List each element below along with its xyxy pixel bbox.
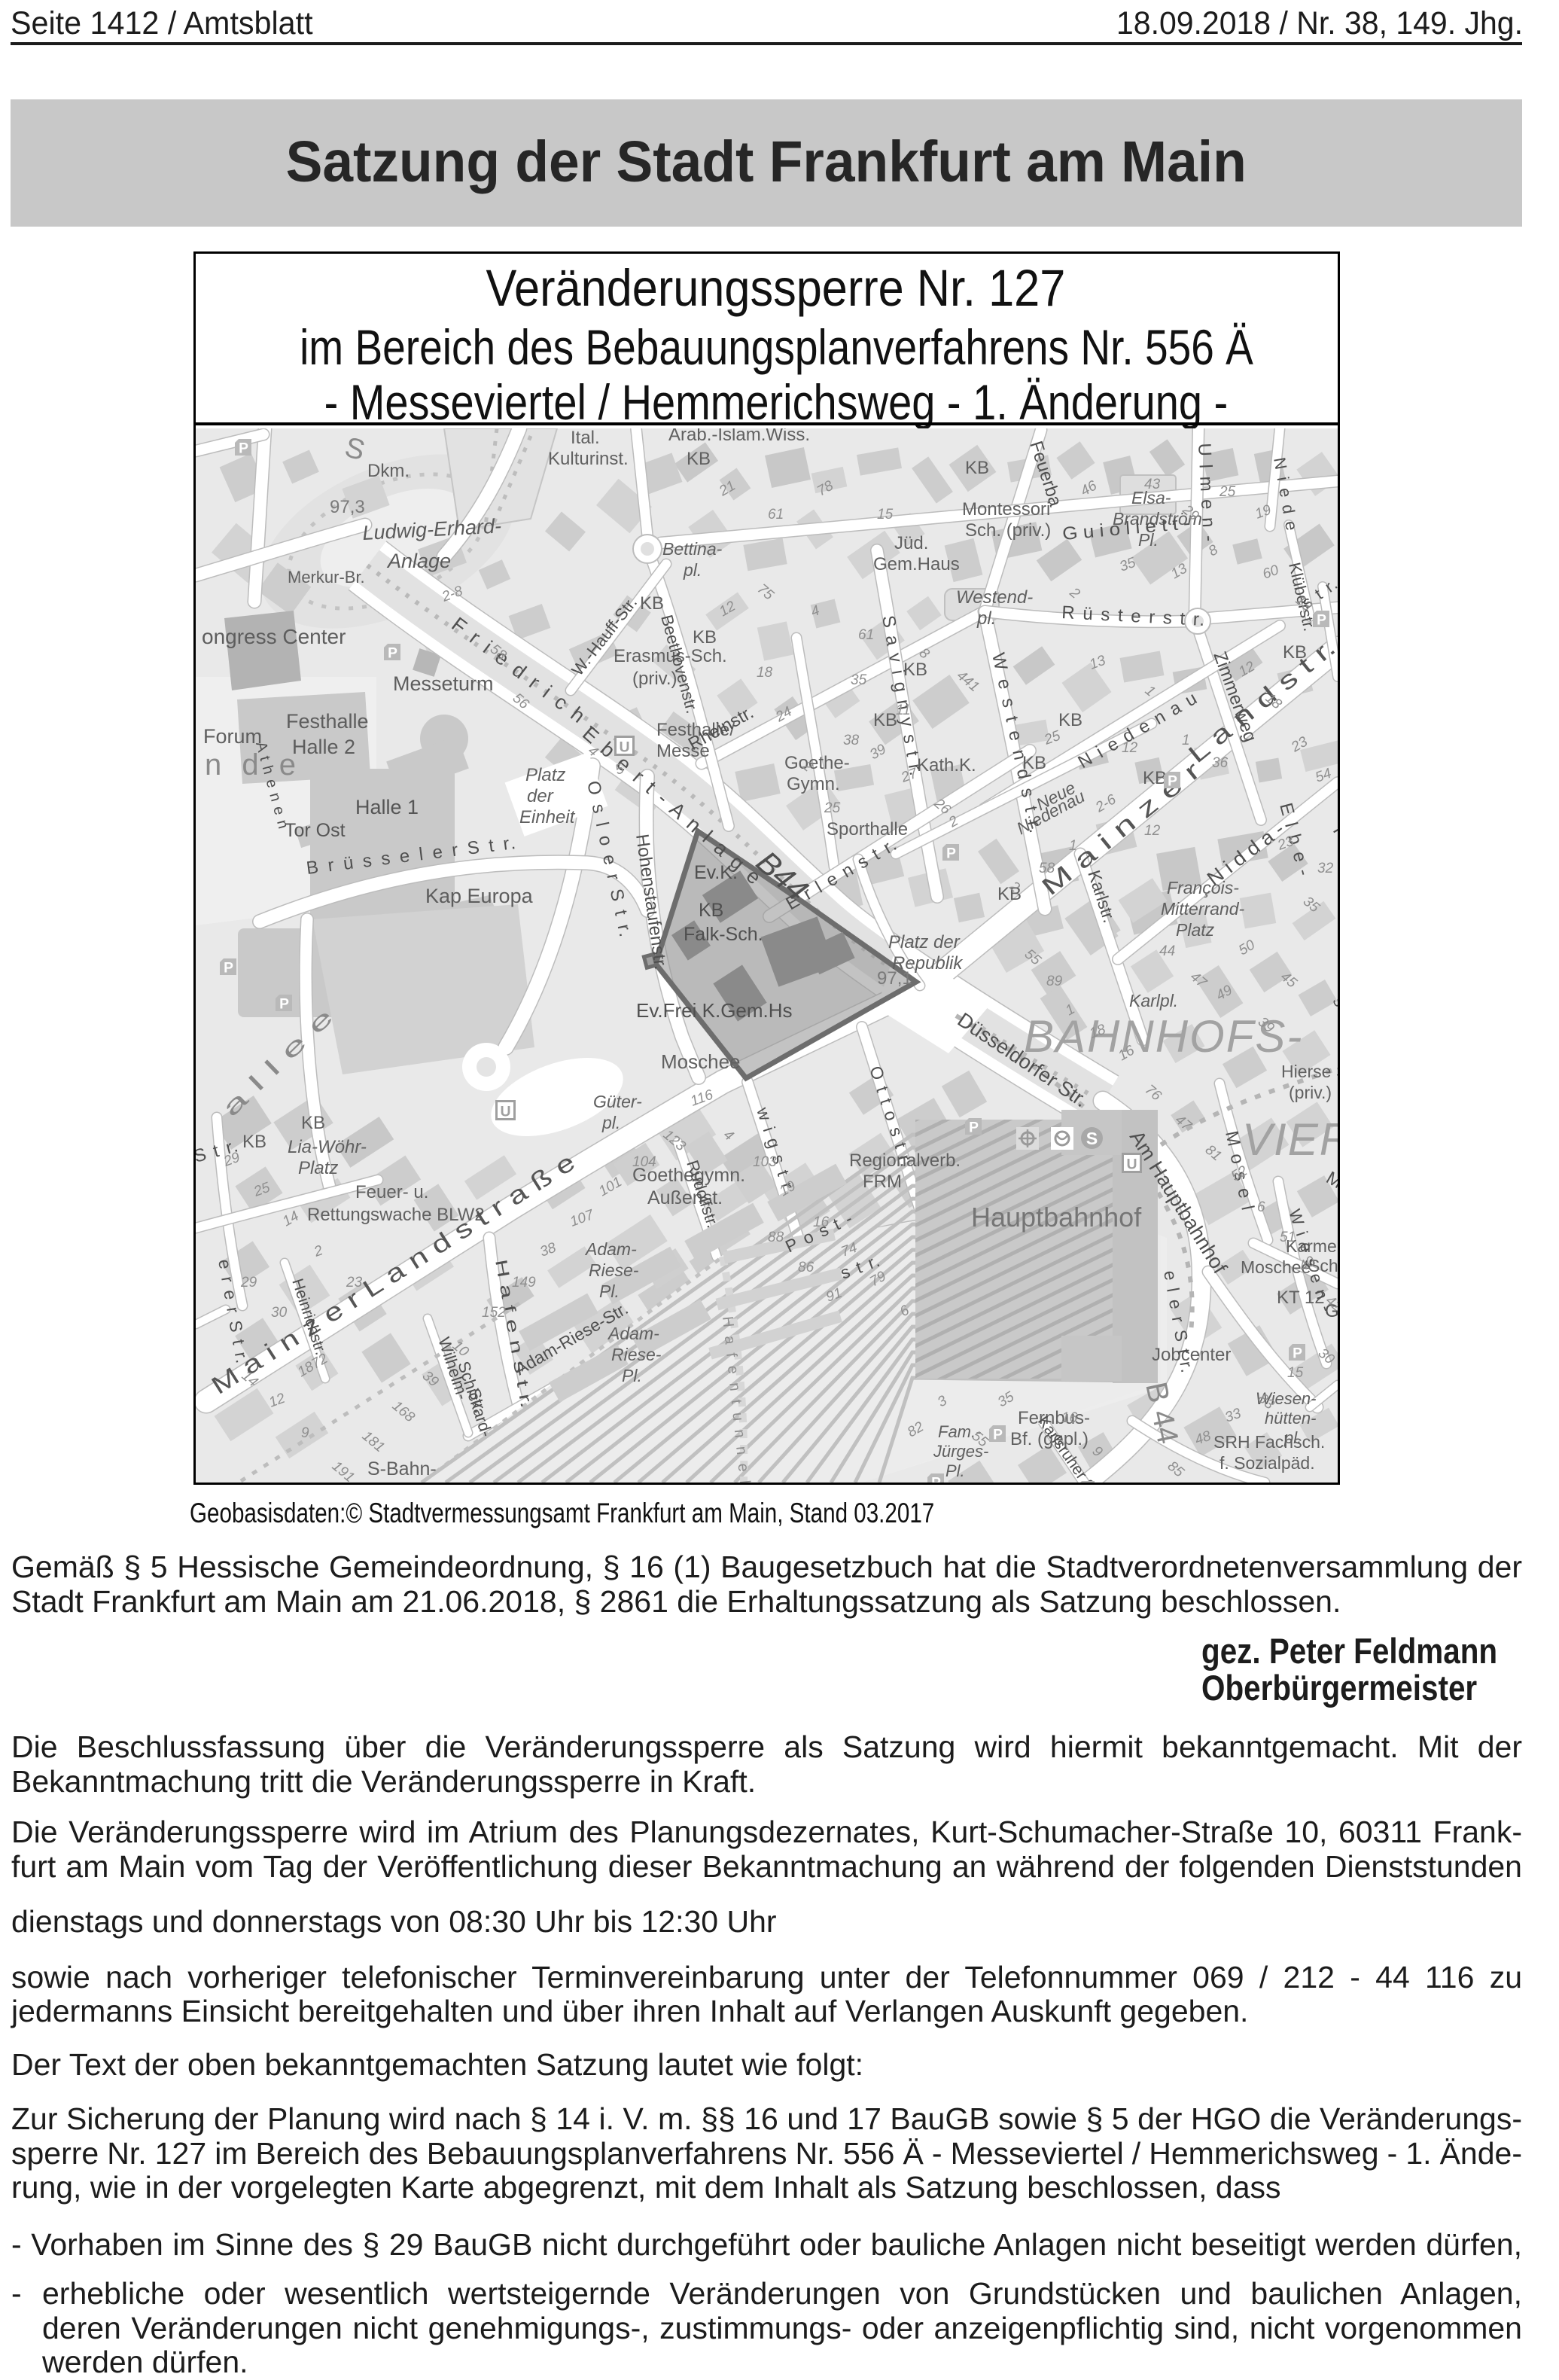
svg-text:Goethe-: Goethe- [784,753,850,773]
svg-text:KB: KB [965,458,989,478]
svg-text:S: S [1086,1129,1098,1148]
svg-text:Feuer- u.: Feuer- u. [355,1182,428,1202]
svg-text:Jüd.: Jüd. [894,533,928,553]
svg-text:Platz: Platz [525,765,565,785]
svg-text:Pl.: Pl. [945,1461,965,1480]
svg-text:15: 15 [877,507,894,523]
svg-text:149: 149 [512,1275,536,1291]
svg-text:58: 58 [1039,861,1055,876]
svg-text:152: 152 [482,1305,506,1321]
svg-text:U: U [1126,1156,1137,1173]
svg-text:P: P [993,1427,1003,1443]
svg-text:Hierse Sc: Hierse Sc [1281,1062,1338,1081]
svg-text:35: 35 [851,672,867,688]
svg-text:Platz der: Platz der [888,932,961,952]
svg-text:Hauptbahnhof: Hauptbahnhof [971,1202,1142,1233]
svg-text:51: 51 [1280,1230,1296,1245]
svg-text:U: U [619,739,629,756]
svg-text:(priv.): (priv.) [1289,1083,1332,1102]
svg-text:Moschee: Moschee [661,1050,741,1073]
svg-text:P: P [224,960,233,976]
svg-text:n d e: n d e [205,748,302,782]
svg-text:18: 18 [757,665,773,681]
svg-text:der: der [527,786,554,806]
svg-text:Arab.-Islam.Wiss.: Arab.-Islam.Wiss. [668,428,810,445]
svg-text:KB: KB [1058,710,1082,730]
svg-text:12: 12 [1144,823,1161,839]
svg-text:Montessori: Montessori [962,499,1050,520]
svg-text:Sporthalle: Sporthalle [827,819,908,840]
svg-text:Platz: Platz [298,1158,338,1178]
svg-text:U: U [500,1104,510,1120]
svg-text:36: 36 [1212,755,1229,771]
svg-text:KB: KB [873,710,897,730]
svg-text:61: 61 [858,627,874,643]
svg-text:61: 61 [768,507,784,523]
svg-text:ongress Center: ongress Center [202,625,346,648]
svg-text:23: 23 [346,1275,363,1291]
svg-text:KB: KB [242,1132,266,1152]
svg-text:f. Sozialpäd.: f. Sozialpäd. [1219,1453,1315,1473]
svg-text:P: P [946,846,956,861]
svg-text:Gem.Haus: Gem.Haus [873,554,960,574]
svg-text:P: P [1293,1345,1302,1361]
svg-text:Anlage: Anlage [386,550,451,572]
svg-text:6: 6 [1257,1199,1265,1215]
svg-text:97,3: 97,3 [330,497,365,517]
svg-text:P: P [1168,773,1177,789]
svg-text:104: 104 [632,1154,656,1170]
svg-text:Sch. (priv.): Sch. (priv.) [965,520,1051,541]
svg-text:43: 43 [1144,477,1161,492]
svg-text:97,1: 97,1 [877,968,912,989]
svg-text:25: 25 [1219,484,1236,500]
svg-text:Platz: Platz [1176,920,1215,940]
svg-text:86: 86 [798,1260,815,1275]
svg-text:Adam-: Adam- [607,1324,659,1343]
svg-text:11: 11 [896,702,911,718]
svg-text:Ev.Frei K.Gem.Hs: Ev.Frei K.Gem.Hs [636,999,793,1022]
svg-text:Kap Europa: Kap Europa [425,885,534,907]
svg-text:Pl.: Pl. [599,1281,620,1301]
svg-text:Messeturm: Messeturm [393,672,494,695]
svg-text:Riese-: Riese- [611,1345,662,1364]
svg-text:Lia-Wöhr-: Lia-Wöhr- [288,1137,367,1157]
svg-text:(priv.): (priv.) [632,669,677,689]
svg-text:Adam-: Adam- [584,1239,637,1259]
svg-text:Merkur-Br.: Merkur-Br. [288,568,365,587]
svg-text:15: 15 [1287,1365,1304,1381]
svg-text:88: 88 [768,1230,784,1245]
svg-text:44: 44 [1159,943,1175,959]
svg-text:P: P [969,1120,979,1135]
svg-text:Pl.: Pl. [622,1366,642,1385]
svg-text:Mitterrand-: Mitterrand- [1161,899,1245,919]
svg-text:Halle 1: Halle 1 [355,796,419,818]
svg-text:KB: KB [687,449,711,469]
svg-text:pl.: pl. [601,1113,620,1132]
svg-text:16: 16 [1061,1410,1078,1426]
svg-text:Bettina-: Bettina- [662,539,723,559]
svg-text:pl.: pl. [976,608,996,629]
svg-text:SRH Fachsch.: SRH Fachsch. [1213,1432,1325,1452]
svg-text:Westend-: Westend- [956,587,1033,608]
svg-text:Dkm.: Dkm. [367,461,410,481]
svg-text:38: 38 [843,733,860,748]
svg-text:pl.: pl. [683,560,702,580]
svg-text:P: P [1317,612,1326,628]
svg-text:KB: KB [699,900,723,921]
svg-text:KB: KB [301,1113,325,1133]
svg-text:François-: François- [1167,878,1239,897]
svg-text:16: 16 [813,1214,830,1230]
svg-text:29: 29 [240,1275,257,1291]
svg-text:Einheit: Einheit [519,807,576,827]
svg-text:Kulturinst.: Kulturinst. [548,449,629,469]
svg-text:1: 1 [1182,733,1190,748]
svg-text:P: P [931,1475,941,1483]
svg-text:Karlpl.: Karlpl. [1129,991,1178,1010]
svg-text:S-Bahn-: S-Bahn- [367,1458,437,1480]
svg-text:Riese-: Riese- [589,1260,639,1280]
svg-text:VIERT: VIERT [1242,1114,1338,1165]
svg-text:9: 9 [301,1425,309,1441]
svg-text:FRM: FRM [863,1172,902,1192]
svg-text:25: 25 [824,800,841,816]
svg-text:103: 103 [753,1154,777,1170]
svg-text:P: P [279,996,289,1012]
svg-text:Güter-: Güter- [593,1092,642,1111]
svg-text:Gymn.: Gymn. [787,774,840,794]
svg-text:KB: KB [693,627,717,648]
svg-text:hütten-: hütten- [1265,1409,1317,1428]
svg-text:32: 32 [1317,861,1334,876]
svg-text:1: 1 [1069,838,1077,854]
svg-text:Tor Ost: Tor Ost [285,820,346,841]
svg-text:P: P [388,645,397,661]
svg-text:P: P [239,440,248,456]
svg-text:12: 12 [1122,740,1138,756]
svg-text:KB: KB [640,593,664,614]
svg-text:Ital.: Ital. [571,428,600,448]
svg-text:Falk-Sch.: Falk-Sch. [684,924,763,945]
svg-text:89: 89 [1046,974,1063,989]
svg-text:Festhalle: Festhalle [286,710,369,733]
svg-text:30: 30 [271,1305,288,1321]
